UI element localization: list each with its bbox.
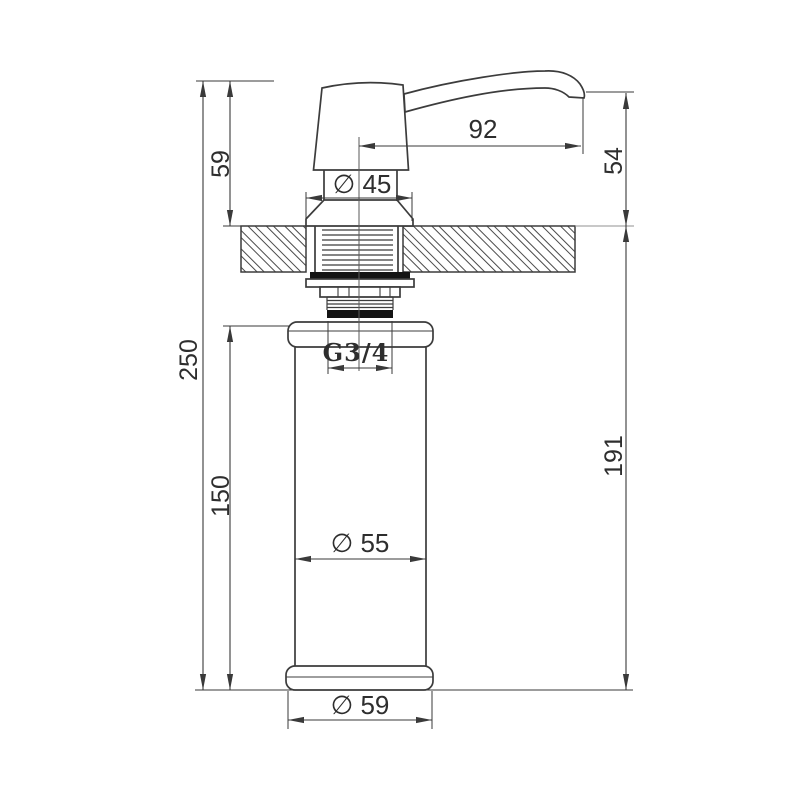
bottle-body-walls bbox=[295, 347, 426, 666]
worktop-section bbox=[223, 226, 634, 272]
dim-base-diameter-label: ∅ 59 bbox=[331, 690, 390, 720]
soap-dispenser-drawing: 250 59 150 92 54 191 ∅ 45 G3/4 ∅ 55 bbox=[0, 0, 800, 800]
o-ring bbox=[327, 310, 393, 318]
worktop-right-block bbox=[403, 226, 575, 272]
worktop-left-block bbox=[241, 226, 306, 272]
dim-body-diameter-label: ∅ 55 bbox=[331, 528, 390, 558]
dim-spout-height-label: 54 bbox=[600, 147, 628, 175]
lower-thread-coils bbox=[327, 297, 393, 310]
upper-thread-coils bbox=[322, 230, 393, 270]
pump-assembly bbox=[306, 71, 584, 226]
dim-collar-diameter-label: ∅ 45 bbox=[333, 169, 392, 199]
technical-drawing-page: 250 59 150 92 54 191 ∅ 45 G3/4 ∅ 55 bbox=[0, 0, 800, 800]
dim-below-counter-label: 191 bbox=[600, 435, 628, 477]
bottle bbox=[286, 322, 433, 690]
pump-head bbox=[314, 83, 409, 170]
dim-thread-label: G3/4 bbox=[323, 338, 390, 367]
dim-spout-reach-label: 92 bbox=[469, 114, 498, 144]
dim-bottle-height-label: 150 bbox=[207, 475, 235, 517]
spout bbox=[404, 71, 584, 112]
bottle-base-rim bbox=[286, 666, 433, 690]
dimensions: 250 59 150 92 54 191 ∅ 45 G3/4 ∅ 55 bbox=[175, 81, 634, 729]
washer bbox=[306, 279, 414, 287]
dim-pump-height-label: 59 bbox=[207, 150, 235, 178]
mounting-shank bbox=[306, 226, 414, 318]
rubber-gasket bbox=[310, 272, 410, 279]
dim-overall-height-label: 250 bbox=[175, 339, 203, 381]
locknut bbox=[320, 287, 400, 297]
